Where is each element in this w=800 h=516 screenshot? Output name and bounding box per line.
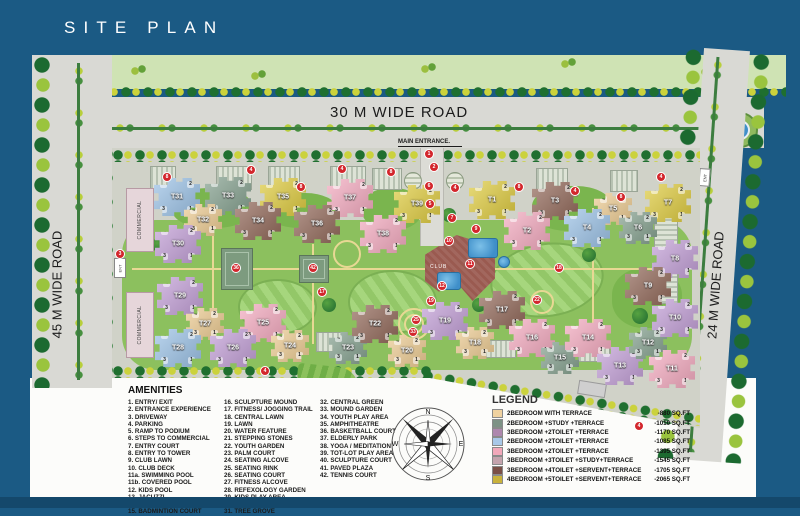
legend-swatch	[492, 466, 503, 475]
legend-label: 4BEDROOM +5TOILET +SERVENT+TERRACE	[507, 476, 650, 483]
amenity-item: 21. STEPPING STONES	[224, 435, 310, 442]
legend-label: 3BEDROOM +2TOILET +TERRACE	[507, 448, 650, 455]
amenity-item: 22. YOUTH GARDEN	[224, 443, 310, 450]
legend-area: -1545 SQ.FT	[654, 457, 690, 464]
legend-row: 2BEDROOM +2TOILET +TERRACE-1085 SQ.FT	[492, 437, 690, 446]
legend-row: 3BEDROOM +4TOILET +SERVENT+TERRACE-1705 …	[492, 465, 690, 474]
legend-label: 3BEDROOM +4TOILET +SERVENT+TERRACE	[507, 467, 650, 474]
amenity-marker-7: 7	[447, 213, 457, 223]
legend-label: 2BEDROOM +STUDY +TERRACE	[507, 420, 650, 427]
amenity-item: 8. ENTRY TO TOWER	[128, 450, 214, 457]
amenity-item: 17. FITNESS/ JOGGING TRAIL	[224, 406, 310, 413]
legend-rows: 2BEDROOM WITH TERRACE-880 SQ.FT2BEDROOM …	[492, 409, 690, 484]
amenity-marker-8: 8	[162, 172, 172, 182]
amenity-marker-12: 12	[437, 281, 447, 291]
amenity-marker-8: 8	[386, 167, 396, 177]
amenity-marker-33: 33	[408, 327, 418, 337]
amenity-marker-4: 4	[260, 366, 270, 376]
legend-label: 2BEDROOM WITH TERRACE	[507, 410, 654, 417]
legend-swatch	[492, 428, 503, 437]
amenity-marker-4: 4	[450, 183, 460, 193]
amenity-marker-1: 1	[424, 149, 434, 159]
amenity-marker-8: 8	[616, 192, 626, 202]
amenity-marker-3: 3	[115, 249, 125, 259]
amenity-marker-8: 8	[514, 182, 524, 192]
legend-area: -2065 SQ.FT	[654, 476, 690, 483]
amenity-item: 4. PARKING	[128, 421, 214, 428]
amenity-marker-19: 19	[426, 296, 436, 306]
amenity-item: 27. FITNESS ALCOVE	[224, 479, 310, 486]
legend-row: 3BEDROOM +2TOILET +TERRACE-1395 SQ.FT	[492, 447, 690, 456]
compass-e: E	[459, 441, 464, 448]
amenity-item: 11b. COVERED POOL	[128, 479, 214, 486]
legend-swatch	[492, 419, 503, 428]
amenity-marker-10: 10	[444, 236, 454, 246]
legend-swatch	[492, 475, 503, 484]
legend-area: -880 SQ.FT	[658, 410, 690, 417]
compass-s: S	[426, 475, 431, 482]
compass-w: W	[392, 441, 399, 448]
legend-label: 2BEDROOM +2TOILET +TERRACE	[507, 438, 650, 445]
amenity-item: 25. SEATING RINK	[224, 465, 310, 472]
legend-label: 3BEDROOM +2TOILET +TERRACE	[507, 429, 651, 436]
amenity-item: 18. CENTRAL LAWN	[224, 414, 310, 421]
amenity-item: 1. ENTRY/ EXIT	[128, 399, 214, 406]
amenity-marker-42: 42	[308, 263, 318, 273]
amenity-item: 26. SEATING COURT	[224, 472, 310, 479]
amenity-item: 10. CLUB DECK	[128, 465, 214, 472]
compass-n: N	[425, 409, 430, 416]
amenity-marker-4: 4	[656, 172, 666, 182]
amenity-marker-5: 5	[425, 199, 435, 209]
amenity-item: 11a. SWIMMING POOL	[128, 472, 214, 479]
legend-swatch	[492, 456, 503, 465]
amenity-item: 16. SCULPTURE MOUND	[224, 399, 310, 406]
compass-rose: N E S W	[388, 404, 468, 484]
amenity-item: 24. SEATING ALCOVE	[224, 457, 310, 464]
legend-area: -1705 SQ.FT	[654, 467, 690, 474]
amenity-item: 31. TREE GROVE	[224, 508, 310, 515]
amenity-item: 2. ENTRANCE EXPERIENCE	[128, 406, 214, 413]
legend-row: 3BEDROOM +2TOILET +TERRACE-1170 SQ.FT	[492, 428, 690, 437]
amenity-marker-4: 4	[246, 165, 256, 175]
amenity-marker-9: 9	[471, 224, 481, 234]
legend-label: 3BEDROOM +3TOILET +STUDY+TERRACE	[507, 457, 650, 464]
legend-swatch	[492, 447, 503, 456]
amenity-item: 28. REFEXOLOGY GARDEN	[224, 487, 310, 494]
legend-title: LEGEND	[492, 394, 690, 406]
legend-row: 3BEDROOM +3TOILET +STUDY+TERRACE-1545 SQ…	[492, 456, 690, 465]
site-plan-poster: SITE PLAN 30 M WIDE ROAD 45 M WIDE ROAD	[0, 0, 800, 508]
legend-area: -1170 SQ.FT	[655, 429, 690, 436]
legend-row: 2BEDROOM +STUDY +TERRACE-1010 SQ.FT	[492, 418, 690, 427]
legend-row: 2BEDROOM WITH TERRACE-880 SQ.FT	[492, 409, 690, 418]
amenity-marker-4: 4	[337, 164, 347, 174]
amenity-item: 19. LAWN	[224, 421, 310, 428]
amenity-marker-8: 8	[296, 182, 306, 192]
amenity-item: 20. WATER FEATURE	[224, 428, 310, 435]
bottom-border	[0, 497, 800, 508]
right-border	[786, 0, 800, 508]
amenity-marker-4: 4	[570, 186, 580, 196]
amenities-title: AMENITIES	[128, 385, 406, 396]
amenity-marker-17: 17	[317, 287, 327, 297]
amenity-marker-18: 18	[554, 263, 564, 273]
amenity-item: 23. PALM COURT	[224, 450, 310, 457]
legend-swatch	[492, 437, 503, 446]
legend-area: -1010 SQ.FT	[654, 420, 690, 427]
amenity-item: 5. RAMP TO PODIUM	[128, 428, 214, 435]
amenity-item: 3. DRIVEWAY	[128, 414, 214, 421]
amenity-item: 7. ENTRY COURT	[128, 443, 214, 450]
amenity-item: 6. STEPS TO COMMERCIAL	[128, 435, 214, 442]
legend-area: -1085 SQ.FT	[654, 438, 690, 445]
legend-row: 4BEDROOM +5TOILET +SERVENT+TERRACE-2065 …	[492, 475, 690, 484]
legend: LEGEND 2BEDROOM WITH TERRACE-880 SQ.FT2B…	[492, 394, 690, 484]
amenity-item: 9. CLUB LAWN	[128, 457, 214, 464]
amenity-item: 12. KIDS POOL	[128, 487, 214, 494]
amenity-marker-36: 36	[231, 263, 241, 273]
amenity-marker-6: 6	[424, 181, 434, 191]
amenity-marker-11: 11	[465, 259, 475, 269]
legend-swatch	[492, 409, 503, 418]
legend-area: -1395 SQ.FT	[654, 448, 690, 455]
amenity-marker-2: 2	[429, 162, 439, 172]
amenity-marker-25: 25	[411, 315, 421, 325]
amenity-marker-22: 22	[532, 295, 542, 305]
amenity-item: 15. BADMINTION COURT	[128, 508, 214, 515]
